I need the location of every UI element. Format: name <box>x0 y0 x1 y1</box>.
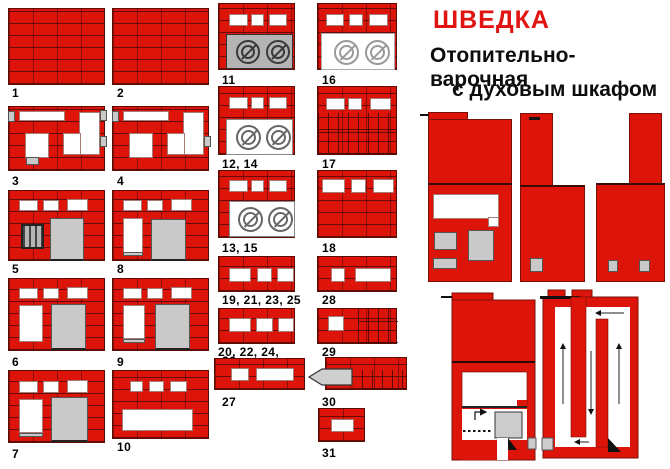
channel-opening <box>171 199 192 211</box>
channel-opening <box>349 14 363 26</box>
course-28-label: 28 <box>322 294 336 306</box>
firebox-opening <box>19 305 43 342</box>
cooking-niche-step <box>488 217 499 227</box>
grate-icon <box>21 224 44 249</box>
oven-box <box>155 304 190 350</box>
course-11-diagram <box>218 3 295 70</box>
on-edge-brick-area <box>362 370 406 389</box>
channel-opening <box>43 381 59 393</box>
firebox-opening <box>129 133 153 158</box>
course-9-diagram <box>112 278 209 351</box>
course-10-label: 10 <box>117 441 131 453</box>
channel-opening <box>147 288 163 299</box>
oven-box <box>51 397 88 442</box>
course-3-diagram <box>8 106 105 171</box>
channel-opening <box>123 111 169 121</box>
channel-opening <box>123 200 142 211</box>
course-20-diagram <box>218 308 295 344</box>
channel-opening <box>149 381 164 392</box>
cleanout-door <box>608 260 618 272</box>
course-8-label: 8 <box>117 263 124 275</box>
flue-opening <box>331 419 354 432</box>
channel-opening <box>251 14 264 26</box>
course-12-14-label: 12, 14 <box>222 158 258 170</box>
section-view-b <box>540 289 640 463</box>
course-1-diagram <box>8 8 105 85</box>
course-2-label: 2 <box>117 87 124 99</box>
course-9-label: 9 <box>117 356 124 368</box>
course-13-15-diagram <box>218 170 295 238</box>
channel-opening <box>183 112 204 155</box>
stove-masonry-plan-sheet: 1 3 5 6 7 2 <box>0 0 670 469</box>
burner-icon <box>268 207 293 232</box>
firebox-opening <box>19 399 43 433</box>
course-17-diagram <box>317 86 397 155</box>
burner-icon <box>266 125 291 150</box>
channel-opening <box>355 268 391 282</box>
course-28-diagram <box>317 256 397 292</box>
channel-opening <box>123 288 142 299</box>
channel-opening <box>269 97 287 109</box>
channel-opening <box>326 98 345 110</box>
channel-opening <box>19 111 65 121</box>
course-11-label: 11 <box>222 74 236 86</box>
channel-opening <box>331 268 345 282</box>
course-27-label: 27 <box>222 396 236 408</box>
course-7-diagram <box>8 370 105 443</box>
channel-opening <box>79 112 100 155</box>
channel-opening <box>328 316 344 331</box>
channel-opening <box>63 133 81 155</box>
course-5-diagram <box>8 190 105 261</box>
burner-icon <box>236 125 261 150</box>
channel-opening <box>229 14 248 26</box>
shelf-line <box>428 183 512 185</box>
channel-opening <box>229 268 251 282</box>
stove-subtitle-2: с духовым шкафом <box>452 78 657 102</box>
channel-baffle <box>596 319 608 447</box>
firebox-door <box>434 232 457 250</box>
channel-opening <box>351 179 366 193</box>
channel-opening <box>229 180 248 192</box>
ash-door <box>433 258 457 269</box>
course-29-diagram <box>317 308 397 344</box>
course-19-diagram <box>218 256 295 292</box>
course-31-diagram <box>318 408 365 442</box>
cleanout-door <box>528 438 536 449</box>
cleanout-door <box>639 260 650 272</box>
cleanout-door <box>204 136 211 147</box>
course-17-label: 17 <box>322 158 336 170</box>
plate-line <box>462 406 527 408</box>
channel-opening <box>277 268 294 282</box>
course-4-diagram <box>112 106 209 171</box>
down-channel <box>497 438 508 460</box>
course-10-diagram <box>112 370 209 439</box>
channel-opening <box>229 318 251 332</box>
channel-opening <box>256 368 294 381</box>
channel-opening <box>67 380 88 393</box>
damper-mark <box>529 117 540 120</box>
on-edge-brick-area <box>358 309 398 343</box>
burner-icon <box>266 40 290 64</box>
burner-icon <box>238 207 263 232</box>
cleanout-door <box>26 157 39 165</box>
channel-opening <box>251 180 264 192</box>
metal-strip <box>123 252 143 256</box>
cleanout-door <box>100 110 107 121</box>
course-6-diagram <box>8 278 105 351</box>
cleanout-door <box>542 438 553 450</box>
course-12-14-diagram <box>218 86 295 155</box>
channel-opening <box>67 199 88 211</box>
channel-baffle <box>571 297 586 437</box>
channel-opening <box>229 97 248 109</box>
channel-opening <box>269 180 287 192</box>
channel-opening <box>19 200 38 211</box>
cooking-plate <box>226 119 293 155</box>
firebox-opening <box>123 305 145 339</box>
course-16-diagram <box>317 3 397 70</box>
course-2-diagram <box>112 8 209 85</box>
cooking-plate <box>226 34 293 69</box>
channel-opening <box>19 288 38 299</box>
burner-icon <box>236 40 260 64</box>
cleanout-door <box>530 258 543 272</box>
course-31-label: 31 <box>322 447 336 459</box>
channel-opening <box>147 200 163 211</box>
damper-arrow <box>306 367 354 387</box>
oven-box <box>151 219 186 261</box>
cooking-plate <box>229 201 295 237</box>
channel-opening <box>43 200 59 211</box>
chamber-opening <box>122 409 193 431</box>
burner-icon <box>365 40 390 65</box>
burner-icon <box>334 40 359 65</box>
course-18-label: 18 <box>322 242 336 254</box>
channel-opening <box>43 288 59 299</box>
oven-box <box>495 412 522 438</box>
oven-box <box>51 304 86 350</box>
course-18-diagram <box>317 170 397 238</box>
cleanout-door <box>100 136 107 147</box>
channel-opening <box>257 268 272 282</box>
cooking-niche <box>433 194 499 219</box>
firebox-opening <box>123 218 143 256</box>
on-edge-brick-area <box>318 113 396 154</box>
channel-opening <box>322 179 345 193</box>
channel-opening <box>231 368 249 381</box>
channel-opening <box>370 98 391 110</box>
stove-name-title: ШВЕДКА <box>433 6 550 35</box>
cleanout-door <box>8 111 15 122</box>
channel-opening <box>348 98 362 110</box>
channel-opening <box>67 287 88 299</box>
channel-opening <box>251 97 264 109</box>
course-27-diagram <box>214 358 305 390</box>
channel-opening <box>278 318 294 332</box>
channel-opening <box>19 381 38 393</box>
course-3-label: 3 <box>12 175 19 187</box>
course-30-label: 30 <box>322 396 336 408</box>
metal-strip <box>19 433 43 437</box>
oven-box <box>50 218 84 261</box>
oven-door <box>468 230 494 261</box>
course-4-label: 4 <box>117 175 124 187</box>
channel-opening <box>256 318 273 332</box>
course-8-diagram <box>112 190 209 261</box>
stove-body <box>596 183 665 282</box>
chimney-column <box>520 113 553 186</box>
course-6-label: 6 <box>12 356 19 368</box>
channel-opening <box>130 381 143 392</box>
chimney-column <box>629 113 662 184</box>
cleanout-door <box>112 111 119 122</box>
course-7-label: 7 <box>12 448 19 460</box>
cooking-plate <box>321 33 395 70</box>
channel-opening <box>326 14 344 26</box>
channel-opening <box>167 133 185 155</box>
course-5-label: 5 <box>12 263 19 275</box>
section-view-a <box>441 290 538 462</box>
course-19-label: 19, 21, 23, 25 <box>222 294 301 306</box>
channel-opening <box>171 287 192 299</box>
course-1-label: 1 <box>12 87 19 99</box>
metal-strip <box>123 339 145 343</box>
channel-opening <box>170 381 187 392</box>
course-13-15-label: 13, 15 <box>222 242 258 254</box>
channel-opening <box>269 14 287 26</box>
damper-handle <box>420 114 429 116</box>
firebox-opening <box>25 133 49 158</box>
channel-opening <box>373 179 394 193</box>
course-16-label: 16 <box>322 74 336 86</box>
channel-opening <box>369 14 388 26</box>
